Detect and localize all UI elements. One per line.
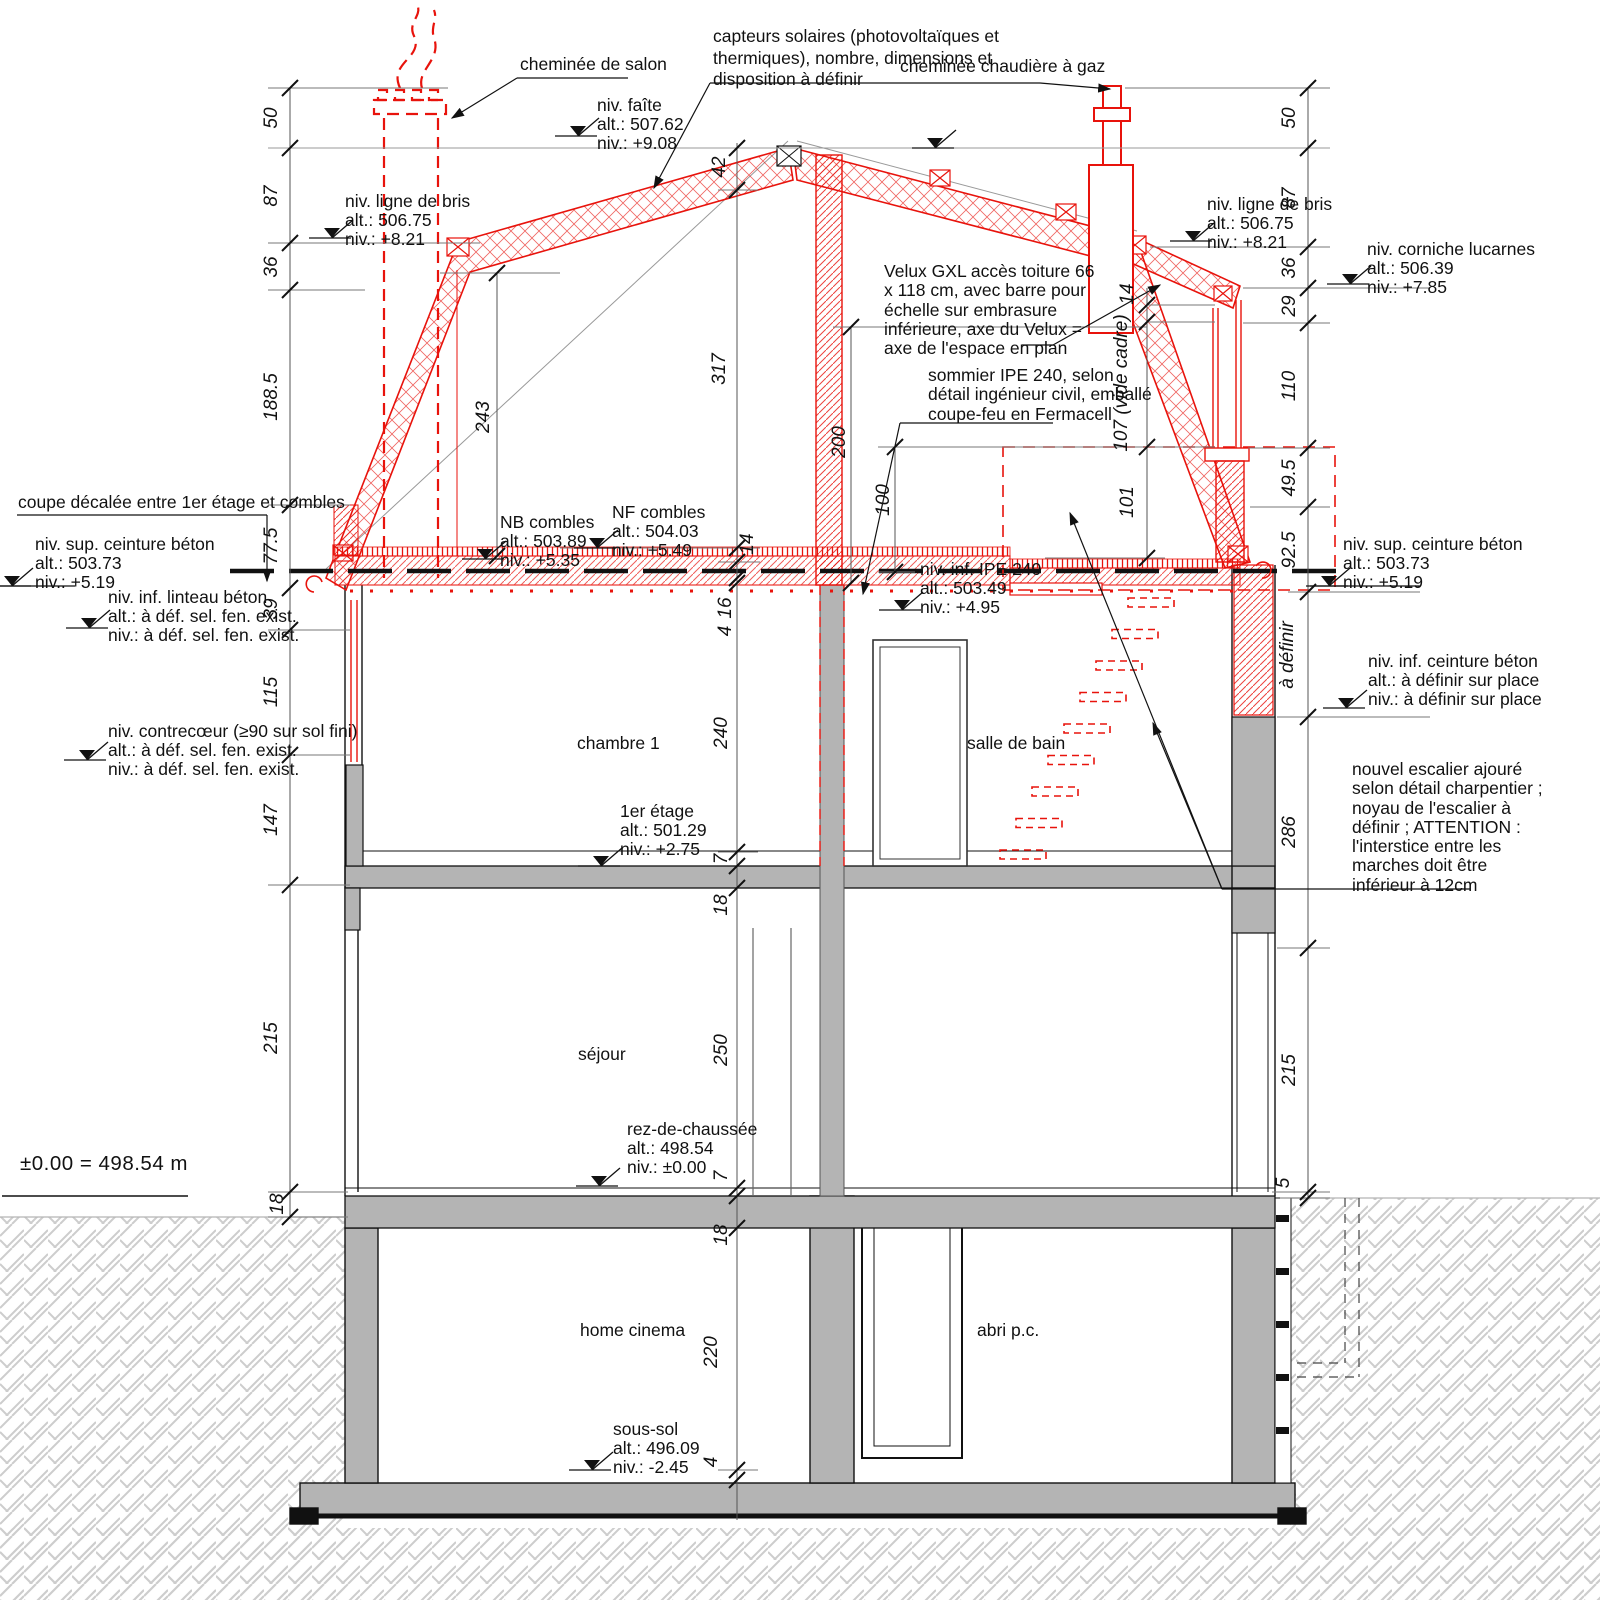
dim-label: 39 [261, 598, 283, 619]
dim-label: 18 [267, 1193, 289, 1214]
level-contrecoeur: niv. contrecœur (≥90 sur sol fini)alt.: … [108, 722, 358, 779]
dim-label: 50 [261, 107, 283, 128]
room-label-chambre: chambre 1 [577, 733, 660, 754]
dim-label: 16 [715, 597, 737, 618]
gutter-left [306, 576, 322, 592]
dim-label: 18 [711, 1224, 733, 1245]
level-nb-combles: NB comblesalt.: 503.89niv.: +5.35 [500, 513, 594, 570]
level-faite: niv. faîtealt.: 507.62niv.: +9.08 [597, 96, 684, 153]
level-rdc: rez-de-chausséealt.: 498.54niv.: ±0.00 [627, 1120, 757, 1177]
ground-hatch [0, 1198, 1600, 1600]
dim-label: 92.5 [1279, 532, 1301, 569]
dim-label: 100 [873, 484, 895, 516]
stairs [1000, 598, 1174, 859]
dim-label: à définir [1277, 621, 1299, 689]
level-etage1: 1er étagealt.: 501.29niv.: +2.75 [620, 802, 707, 859]
dim-label: 49.5 [1279, 460, 1301, 497]
architectural-section-drawing: cheminée de salon capteurs solaires (pho… [0, 0, 1600, 1600]
dim-label: 18 [711, 894, 733, 915]
level-corniche: niv. corniche lucarnesalt.: 506.39niv.: … [1367, 240, 1535, 297]
level-bris-right: niv. ligne de brisalt.: 506.75niv.: +8.2… [1207, 195, 1332, 252]
room-label-bain: salle de bain [967, 733, 1065, 754]
level-sous-sol: sous-solalt.: 496.09niv.: -2.45 [613, 1420, 700, 1477]
dim-label: 250 [711, 1034, 733, 1066]
dim-label: 200 [829, 426, 851, 458]
dim-label: 115 [261, 677, 283, 707]
note-escalier: nouvel escalier ajouré selon détail char… [1352, 760, 1543, 895]
dim-label: 4 [715, 626, 737, 637]
dim-label: 286 [1279, 816, 1301, 848]
dim-label: 220 [701, 1336, 723, 1368]
dim-label: 215 [261, 1022, 283, 1054]
dim-label: 7 [711, 1171, 733, 1182]
note-chimney-gas: cheminée chaudière à gaz [900, 56, 1105, 78]
dim-label: 36 [1279, 257, 1301, 278]
dim-label: 107 (vide cadre) [1111, 314, 1133, 451]
attic-slab [230, 547, 1345, 595]
dim-label: 29 [1279, 295, 1301, 316]
door [873, 640, 967, 866]
abri-box [862, 1214, 962, 1458]
level-inf-ceinture-right: niv. inf. ceinture bétonalt.: à définir … [1368, 652, 1542, 709]
room-label-sejour: séjour [578, 1044, 626, 1065]
dim-label: 4 [701, 1457, 723, 1468]
dim-label: 14 [737, 533, 759, 554]
dim-label: 101 [1117, 486, 1139, 518]
dim-label: 240 [711, 717, 733, 749]
dim-label: 87 [261, 185, 283, 206]
note-chimney-salon: cheminée de salon [520, 54, 667, 76]
floor-slabs [345, 851, 1275, 1228]
flue [820, 585, 844, 1196]
dim-label: 50 [1279, 107, 1301, 128]
dim-label: 147 [261, 804, 283, 836]
dim-label: 317 [709, 353, 731, 385]
level-bris-left: niv. ligne de brisalt.: 506.75niv.: +8.2… [345, 192, 470, 249]
level-sup-ceinture-right: niv. sup. ceinture bétonalt.: 503.73niv.… [1343, 535, 1523, 592]
level-nf-combles: NF comblesalt.: 504.03niv.: +5.49 [612, 503, 705, 560]
note-coupe-decalee: coupe décalée entre 1er étage et combles [18, 492, 345, 514]
attic-column [816, 155, 842, 585]
dim-label: 243 [473, 401, 495, 433]
level-sup-ceinture-left: niv. sup. ceinture bétonalt.: 503.73niv.… [35, 535, 215, 592]
dim-label: 42 [709, 156, 731, 177]
dim-label: 77.5 [261, 528, 283, 565]
dim-label: 36 [261, 256, 283, 277]
dim-label: 14 [1117, 283, 1139, 304]
new-wall-hatched [1234, 565, 1273, 715]
datum-note: ±0.00 = 498.54 m [20, 1152, 188, 1176]
room-label-cinema: home cinema [580, 1320, 685, 1341]
dim-label: 188.5 [261, 373, 283, 421]
basement-structure [290, 1196, 1306, 1524]
dim-label: 7 [711, 854, 733, 865]
level-ipe: niv. inf. IPE 240alt.: 503.49niv.: +4.95 [920, 560, 1041, 617]
dim-label: 215 [1279, 1054, 1301, 1086]
room-label-abri: abri p.c. [977, 1320, 1039, 1341]
dim-label: 110 [1279, 371, 1301, 401]
dim-label: 5 [1273, 1178, 1295, 1189]
note-velux: Velux GXL accès toiture 66 x 118 cm, ave… [884, 262, 1094, 358]
dim-label: 87 [1279, 187, 1301, 208]
